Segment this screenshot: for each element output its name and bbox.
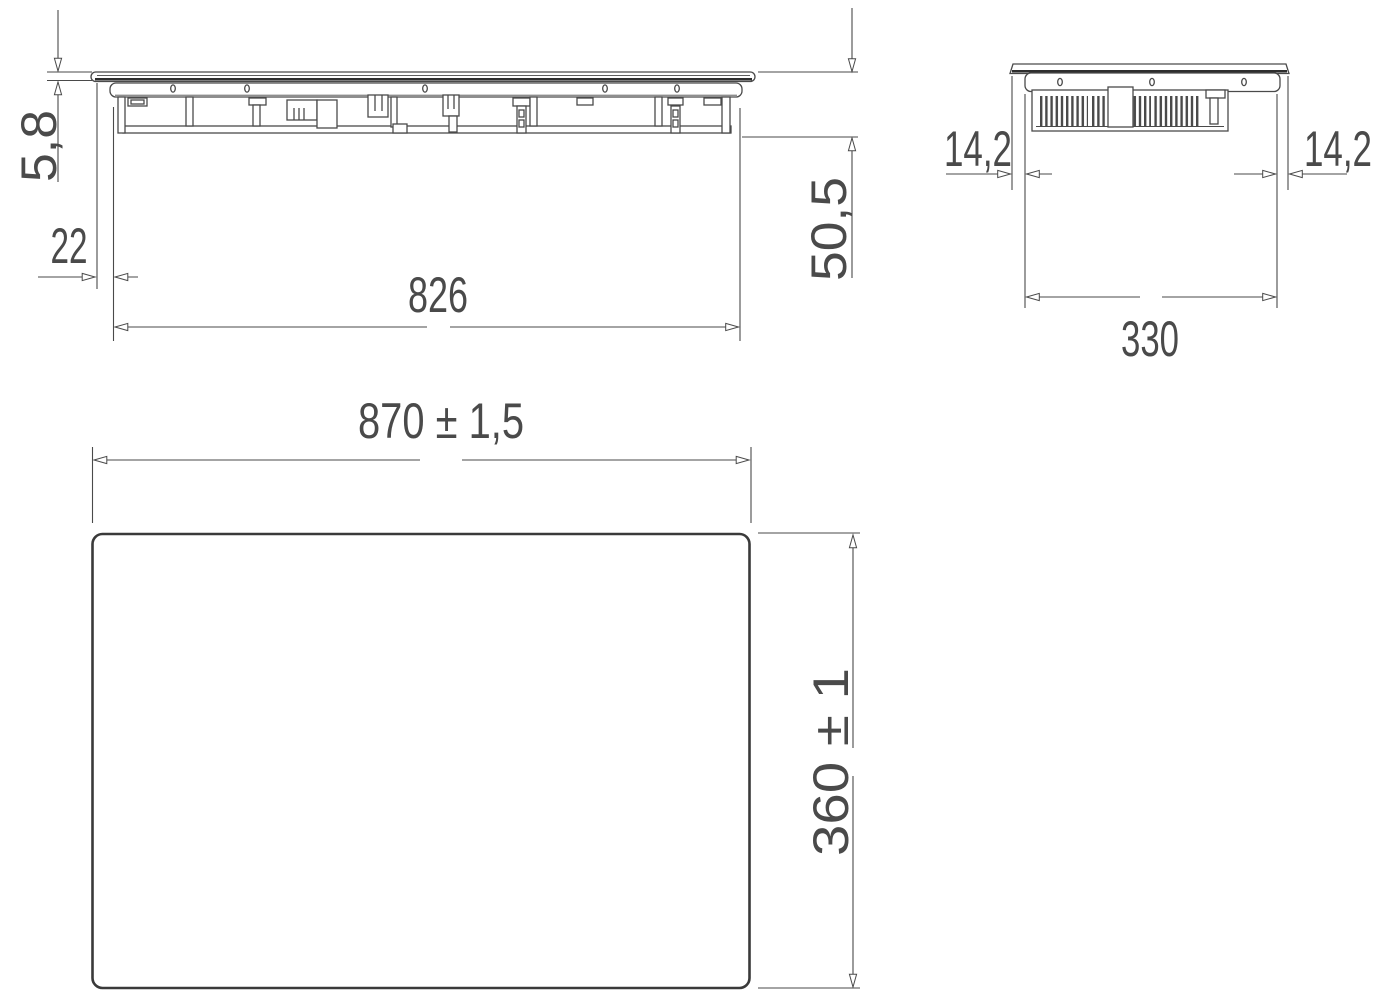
clip bbox=[704, 98, 721, 105]
dim-label-overall-depth: 360 ± 1 bbox=[803, 668, 859, 856]
front-underside-components bbox=[118, 95, 731, 133]
dim-label-overhang-left: 14,2 bbox=[944, 121, 1012, 177]
front-body bbox=[110, 83, 742, 97]
cooling-fins bbox=[1090, 96, 1106, 126]
clip bbox=[668, 98, 683, 105]
separator-wall bbox=[186, 97, 193, 126]
support-pillar bbox=[449, 116, 457, 132]
support-pillar bbox=[391, 97, 397, 127]
separator-wall bbox=[655, 97, 662, 126]
dim-label-body-depth: 330 bbox=[1121, 311, 1179, 367]
latch-window bbox=[673, 110, 678, 117]
clip-inner bbox=[131, 100, 144, 104]
dim-body-width: 826 bbox=[115, 108, 740, 341]
dim-label-overall-height: 50,5 bbox=[801, 177, 857, 281]
dim-overall-depth: 360 ± 1 bbox=[758, 533, 860, 988]
u-bracket bbox=[443, 95, 459, 116]
right-end-wall bbox=[722, 97, 730, 133]
dim-overall-width: 870 ± 1,5 bbox=[93, 393, 752, 523]
front-view: 5,8 22 826 50,5 bbox=[11, 8, 858, 341]
front-dimensions: 5,8 22 826 50,5 bbox=[11, 8, 858, 341]
side-glass-panel bbox=[1010, 64, 1289, 74]
bottom-flange bbox=[123, 126, 731, 133]
clip bbox=[513, 98, 530, 106]
clip bbox=[577, 98, 593, 105]
latch-window bbox=[673, 120, 678, 127]
top-view: 870 ± 1,5 360 ± 1 bbox=[93, 393, 861, 988]
dim-body-depth: 330 bbox=[1027, 297, 1276, 367]
dim-label-glass-thickness: 5,8 bbox=[11, 110, 67, 182]
cooling-fins bbox=[1040, 96, 1088, 126]
u-bracket bbox=[368, 95, 388, 117]
cooling-fins bbox=[1133, 96, 1151, 126]
module-box-step bbox=[317, 100, 337, 128]
dim-label-overall-width: 870 ± 1,5 bbox=[358, 393, 524, 449]
side-body bbox=[1025, 73, 1280, 92]
technical-drawing-page: 5,8 22 826 50,5 bbox=[0, 0, 1400, 1000]
center-module bbox=[1108, 87, 1133, 127]
technical-drawing-canvas: 5,8 22 826 50,5 bbox=[0, 0, 1400, 1000]
cooling-fins bbox=[1153, 96, 1199, 126]
glass-plan-outline bbox=[93, 534, 750, 988]
module-box bbox=[287, 100, 317, 120]
side-tab-slot bbox=[1210, 98, 1218, 124]
dim-overhang-right: 14,2 bbox=[1234, 76, 1372, 308]
dim-label-body-width: 826 bbox=[408, 267, 468, 323]
side-heatsink-block bbox=[1032, 87, 1228, 131]
dim-glass-thickness: 5,8 bbox=[11, 10, 92, 182]
separator-wall bbox=[530, 97, 537, 126]
front-glass-panel bbox=[91, 72, 755, 82]
support-foot bbox=[393, 124, 407, 133]
dim-overall-height: 50,5 bbox=[742, 8, 858, 281]
latch-window bbox=[519, 120, 524, 127]
separator-wall bbox=[253, 105, 260, 126]
clip bbox=[249, 98, 266, 105]
left-end-wall bbox=[118, 97, 125, 133]
dim-label-overhang-right: 14,2 bbox=[1304, 121, 1372, 177]
latch-window bbox=[519, 110, 524, 117]
side-tab bbox=[1206, 90, 1225, 98]
side-view: 14,2 14,2 330 bbox=[944, 64, 1372, 367]
dim-label-glass-overhang: 22 bbox=[51, 218, 88, 274]
